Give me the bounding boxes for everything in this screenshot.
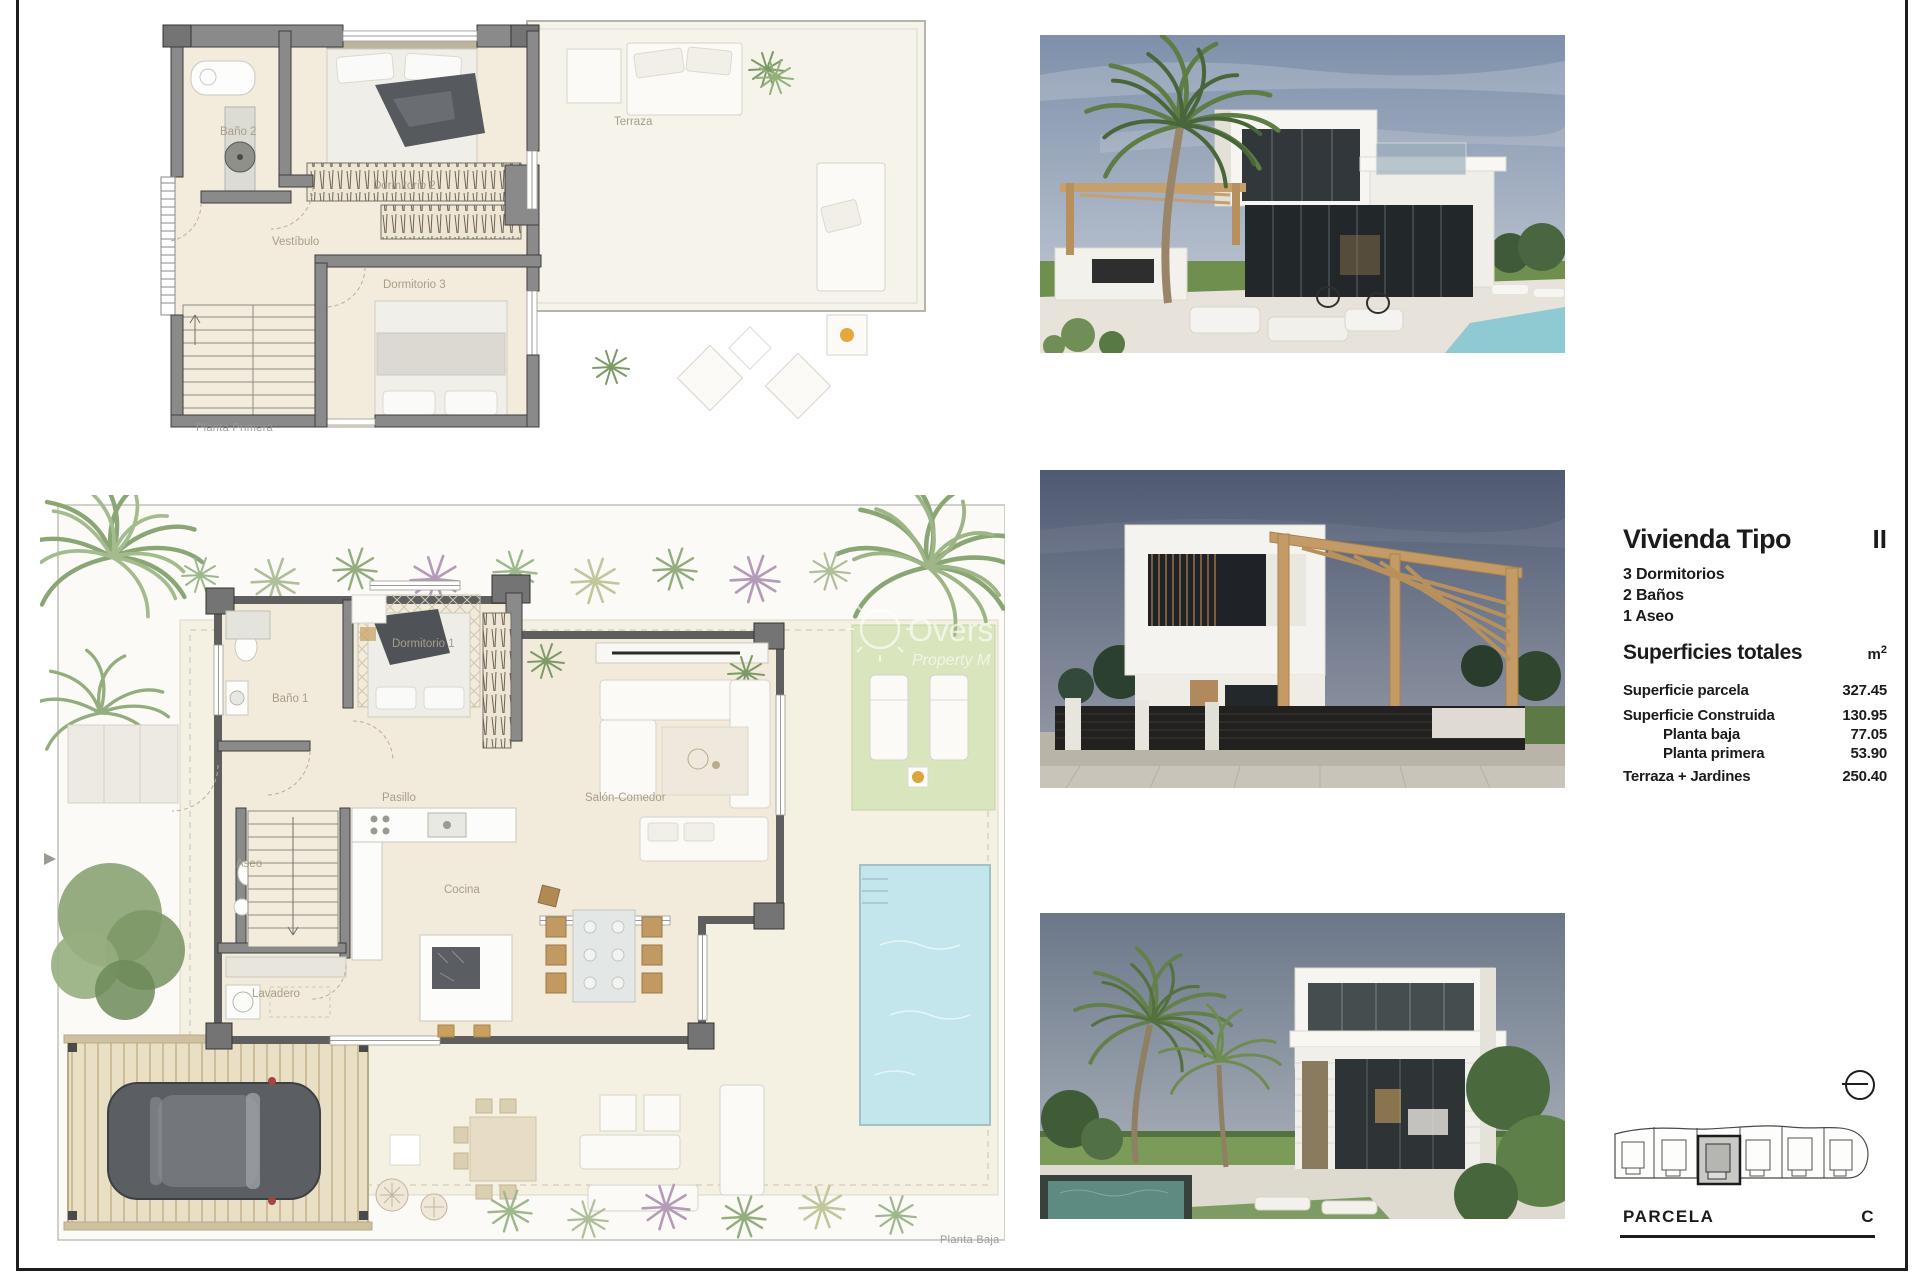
feature-bedrooms: 3 Dormitorios [1623, 564, 1887, 585]
room-label-vestibulo: Vestíbulo [272, 236, 319, 248]
parcela-label-row: PARCELA C [1623, 1207, 1875, 1227]
floorplan-planta-primera: Terraza [75, 15, 930, 435]
table-row: Terraza + Jardines250.40 [1623, 768, 1887, 786]
room-label-pasillo: Pasillo [382, 792, 416, 804]
surfaces-unit: m2 [1868, 644, 1887, 663]
north-indicator-icon [1845, 1070, 1875, 1100]
terrace-area: Terraza [527, 21, 925, 419]
dwelling-type-title: Vivienda Tipo [1623, 524, 1791, 555]
room-label-cocina: Cocina [444, 884, 480, 896]
dormitorio1-furniture [352, 595, 480, 717]
watermark-line2: Property M [912, 652, 991, 669]
dormitorio2-bed [327, 39, 485, 171]
stairs-lower [248, 811, 338, 947]
site-plan-diagram [1612, 1118, 1874, 1198]
room-label-salon-comedor: Salón-Comedor [585, 792, 666, 804]
room-label-dormitorio3: Dormitorio 3 [383, 279, 446, 291]
room-label-bano1: Baño 1 [272, 693, 308, 705]
feature-bathrooms: 2 Baños [1623, 585, 1887, 606]
table-row: Planta primera53.90 [1623, 745, 1887, 763]
render-photo-exterior-pool [1040, 913, 1565, 1219]
surfaces-heading: Superficies totales [1623, 641, 1802, 665]
dormitorio3-bed [375, 301, 507, 427]
room-label-dormitorio1: Dormitorio 1 [392, 638, 455, 650]
carport [64, 1035, 372, 1230]
caption-planta-baja: Planta Baja [940, 1234, 1000, 1246]
table-row: Superficie Construida130.95 [1623, 707, 1887, 725]
planta-primera-drawing: Terraza [75, 15, 930, 435]
info-panel: Vivienda Tipo II 3 Dormitorios 2 Baños 1… [1623, 524, 1887, 786]
table-row: Planta baja77.05 [1623, 726, 1887, 744]
floorplan-planta-baja: Baño 1 Dormitorio 1 Pasillo Aseo Cocina … [40, 495, 1005, 1250]
room-label-aseo: Aseo [236, 858, 262, 870]
pool [860, 865, 990, 1125]
planta-baja-drawing: Baño 1 Dormitorio 1 Pasillo Aseo Cocina … [40, 495, 1005, 1250]
render-photo-exterior-dusk [1040, 470, 1565, 788]
room-label-dormitorio2: Dormitorio 2 [373, 180, 436, 192]
table-row: Superficie parcela327.45 [1623, 682, 1887, 700]
room-label-lavadero: Lavadero [252, 988, 300, 1000]
parcela-underline [1620, 1235, 1875, 1238]
dwelling-type-code: II [1873, 524, 1887, 555]
parcela-code: C [1861, 1207, 1875, 1227]
surfaces-table: Superficie parcela327.45 Superficie Cons… [1623, 682, 1887, 786]
entrance-arrow-icon [44, 853, 56, 865]
room-label-bano2: Baño 2 [220, 126, 256, 138]
watermark-line1: Overs [908, 612, 993, 648]
render-photo-exterior-day [1040, 35, 1565, 353]
car-top-view [108, 1077, 320, 1205]
feature-toilets: 1 Aseo [1623, 606, 1887, 627]
parcela-label: PARCELA [1623, 1207, 1714, 1227]
caption-planta-primera: Planta Primera [196, 422, 273, 434]
entry-path [68, 725, 178, 803]
stairs-upper [183, 305, 323, 423]
room-label-terraza: Terraza [614, 116, 653, 128]
